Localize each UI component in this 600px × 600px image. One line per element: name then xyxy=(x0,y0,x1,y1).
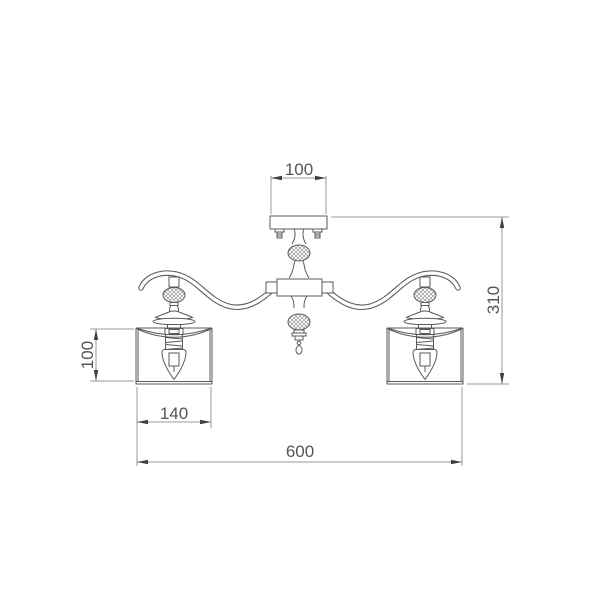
dimension-label-fixture-height: 310 xyxy=(484,286,503,314)
hub-tab-left xyxy=(266,282,277,293)
dimension-label-fixture-width: 600 xyxy=(286,442,314,461)
center-hub xyxy=(266,279,333,296)
dimension-label-shade-height: 100 xyxy=(78,341,97,369)
technical-drawing: 100 310 100 140 600 xyxy=(0,0,600,600)
upper-crystal-ball xyxy=(288,245,310,261)
hub-body xyxy=(277,279,322,296)
hub-tab-right xyxy=(322,282,333,293)
lower-crystal-ball xyxy=(288,314,310,330)
ceiling-plate xyxy=(270,216,327,229)
drawing-background xyxy=(0,0,600,600)
dimension-label-shade-diameter: 140 xyxy=(160,404,188,423)
dimension-label-canopy-width: 100 xyxy=(285,160,313,179)
